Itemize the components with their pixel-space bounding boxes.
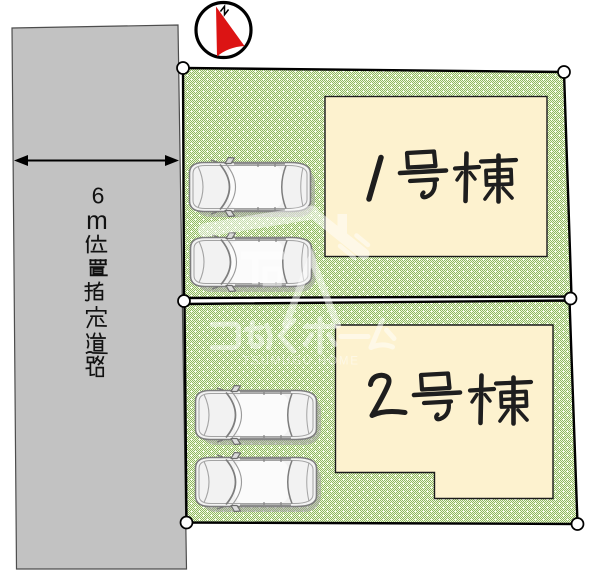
svg-text:TSUMUGU HOME: TSUMUGU HOME [242,356,359,368]
svg-text:m: m [86,205,108,235]
